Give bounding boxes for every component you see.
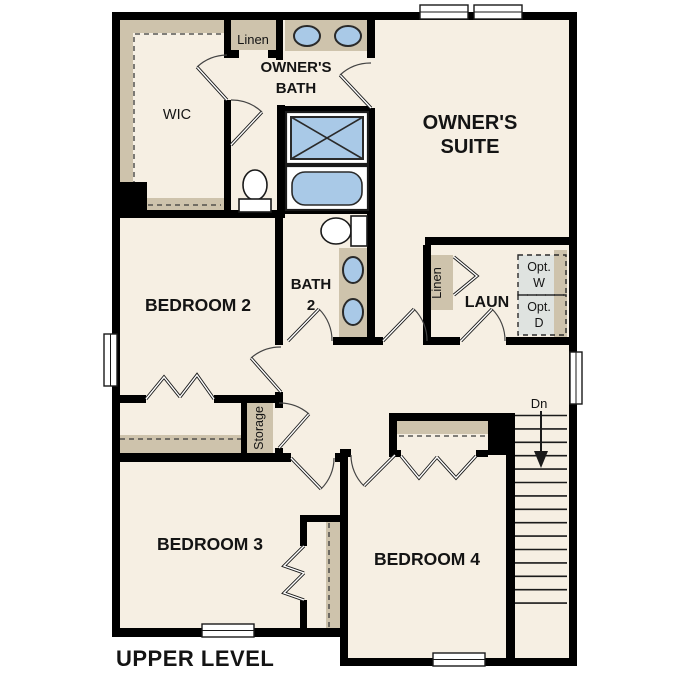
wall-closet-row-right [214,395,277,403]
bedroom4-label: BEDROOM 4 [374,549,480,569]
opt-washer-label-line1: Opt. [527,260,551,274]
window-bedroom4 [433,653,485,666]
bath2-sink-bottom-icon [343,299,363,325]
floor-plan-page: Dn OWNER'S SUITE OWNER'S BATH WIC Linen … [0,0,687,687]
bathtub-icon [292,172,362,205]
linen-top-label: Linen [237,32,269,47]
bedroom3-closet-shelf [326,522,340,628]
wall-storage-left [241,403,247,453]
bath2-toilet-tank-icon [351,216,367,246]
owners-bath-label-line2: BATH [276,80,317,97]
linen-laundry-label: Linen [429,267,444,299]
wall-bed4-closet-stub-r [476,450,488,457]
wall-exterior-left [112,12,120,637]
bedroom2-label: BEDROOM 2 [145,295,251,315]
laundry-counter [554,250,567,338]
page-title: UPPER LEVEL [116,646,274,671]
wall-exterior-right [569,12,577,666]
stairs-dn-label: Dn [531,396,548,411]
owners-suite-label-line2: SUITE [441,136,500,158]
owners-toilet-bowl-icon [243,170,267,200]
bedroom2-closet-shelf [120,435,241,453]
window-top-left [420,5,468,19]
wic-shelf-top [120,20,224,33]
bath2-sink-top-icon [343,257,363,283]
wall-bath-suite-stub [367,20,375,58]
window-right [570,352,582,404]
wall-stairs-left [506,455,515,658]
wic-shelf-left [120,20,133,198]
wall-bed3-closet-top [300,515,348,522]
wall-laundry-bottom-l [423,337,460,345]
storage-label: Storage [252,406,266,450]
owners-toilet-base-icon [239,199,271,212]
wall-wic-corner-block [112,182,147,218]
floor-plan-drawing: Dn OWNER'S SUITE OWNER'S BATH WIC Linen … [0,0,687,687]
wall-suite-bottom [425,237,569,245]
wall-closet-row-left [112,395,146,403]
wall-bedroom3-top [112,453,291,462]
wall-linen-left [224,20,231,58]
wall-bedroom2-right [275,218,283,345]
opt-dryer-label-line1: Opt. [527,300,551,314]
wall-wic-right [224,100,231,213]
bath2-label-line1: BATH [291,276,332,293]
wall-toilet-room-right [277,105,285,213]
bedroom3-label: BEDROOM 3 [157,534,263,554]
wic-label: WIC [163,107,191,123]
bath2-label-line2: 2 [307,297,315,314]
laundry-label: LAUN [465,294,509,311]
wall-linen-stub-r [268,50,276,58]
wall-linen-stub-l [231,50,239,58]
owners-bath-sink-left-icon [294,26,320,46]
bedroom4-closet-shelf [397,419,488,434]
wall-storage-stub-top [275,403,283,408]
owners-bath-sink-right-icon [335,26,361,46]
owners-bath-label-line1: OWNER'S [260,59,331,76]
wall-linen-right [276,20,283,60]
wall-bedroom4-door-stub [340,449,351,457]
wall-stairs-block [488,413,515,455]
wall-bed3-bed4-divider [340,455,348,658]
opt-dryer-label-line2: D [534,316,543,330]
wall-bed4-closet-top [389,413,488,421]
opt-washer-label-line2: W [533,276,545,290]
bath2-toilet-bowl-icon [321,218,351,244]
window-top-right [474,5,522,19]
wall-bed3-closet-stub-t [300,522,307,546]
window-left [104,334,117,386]
window-bedroom3 [202,624,254,637]
wall-laundry-bottom-r [506,337,569,345]
wall-bath2-bottom [333,337,383,345]
wall-bed3-closet-stub-b [300,600,307,628]
owners-suite-label-line1: OWNER'S [423,112,518,134]
